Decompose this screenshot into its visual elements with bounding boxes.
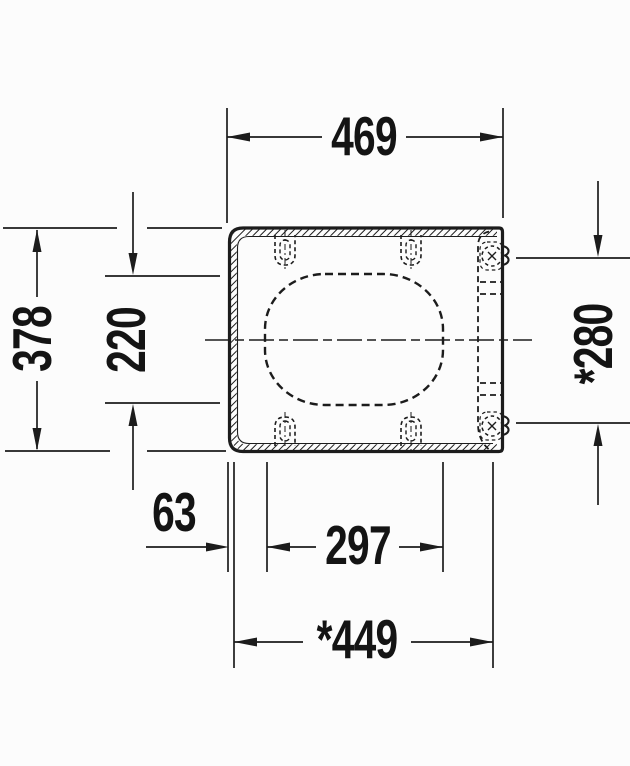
dimension-hinge-distance: *280 xyxy=(516,181,630,505)
dimension-opening-depth: 220 xyxy=(96,192,220,490)
arrowhead-right xyxy=(420,543,443,552)
arrowhead-down xyxy=(594,235,603,257)
dim-width-top-label: 469 xyxy=(331,106,397,167)
dim-lid-width-label: *449 xyxy=(317,609,398,670)
seat-body xyxy=(205,228,532,452)
dim-hinge-distance-label: *280 xyxy=(563,304,624,385)
arrowhead-right xyxy=(206,543,229,552)
arrowhead-right xyxy=(480,133,503,142)
dim-opening-depth-label: 220 xyxy=(96,307,157,373)
arrowhead-left xyxy=(267,543,290,552)
dim-edge-offset-label: 63 xyxy=(152,482,196,543)
dim-opening-width-label: 297 xyxy=(325,515,391,576)
drawing-svg: 469 378 220 xyxy=(0,0,630,766)
dimension-width-top: 469 xyxy=(227,106,503,223)
arrowhead-up xyxy=(129,404,138,426)
technical-drawing: 469 378 220 xyxy=(0,0,630,766)
dim-depth-overall-label: 378 xyxy=(2,306,63,372)
arrowhead-left xyxy=(234,638,257,647)
arrowhead-down xyxy=(129,253,138,275)
arrowhead-left xyxy=(227,133,250,142)
arrowhead-up xyxy=(33,230,42,253)
arrowhead-right xyxy=(470,638,493,647)
dimension-edge-offset: 63 xyxy=(146,462,229,572)
arrowhead-up xyxy=(594,424,603,446)
arrowhead-down xyxy=(33,428,42,451)
dimension-opening-width: 297 xyxy=(267,462,443,577)
